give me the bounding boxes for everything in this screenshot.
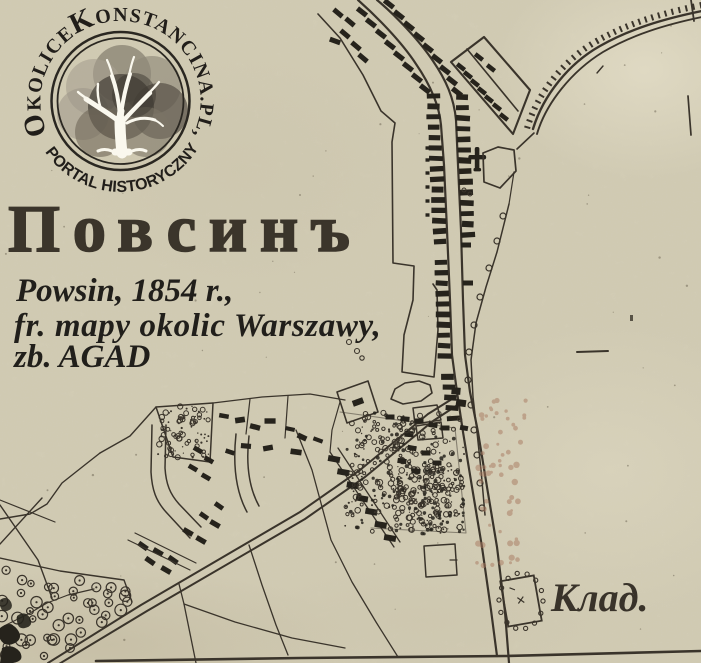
svg-text:Повсинъ: Повсинъ [8,192,362,266]
svg-text:Клад.: Клад. [550,575,649,620]
svg-text:zb. AGAD: zb. AGAD [13,339,150,375]
svg-text:Powsin, 1854 r.,: Powsin, 1854 r., [15,273,233,309]
